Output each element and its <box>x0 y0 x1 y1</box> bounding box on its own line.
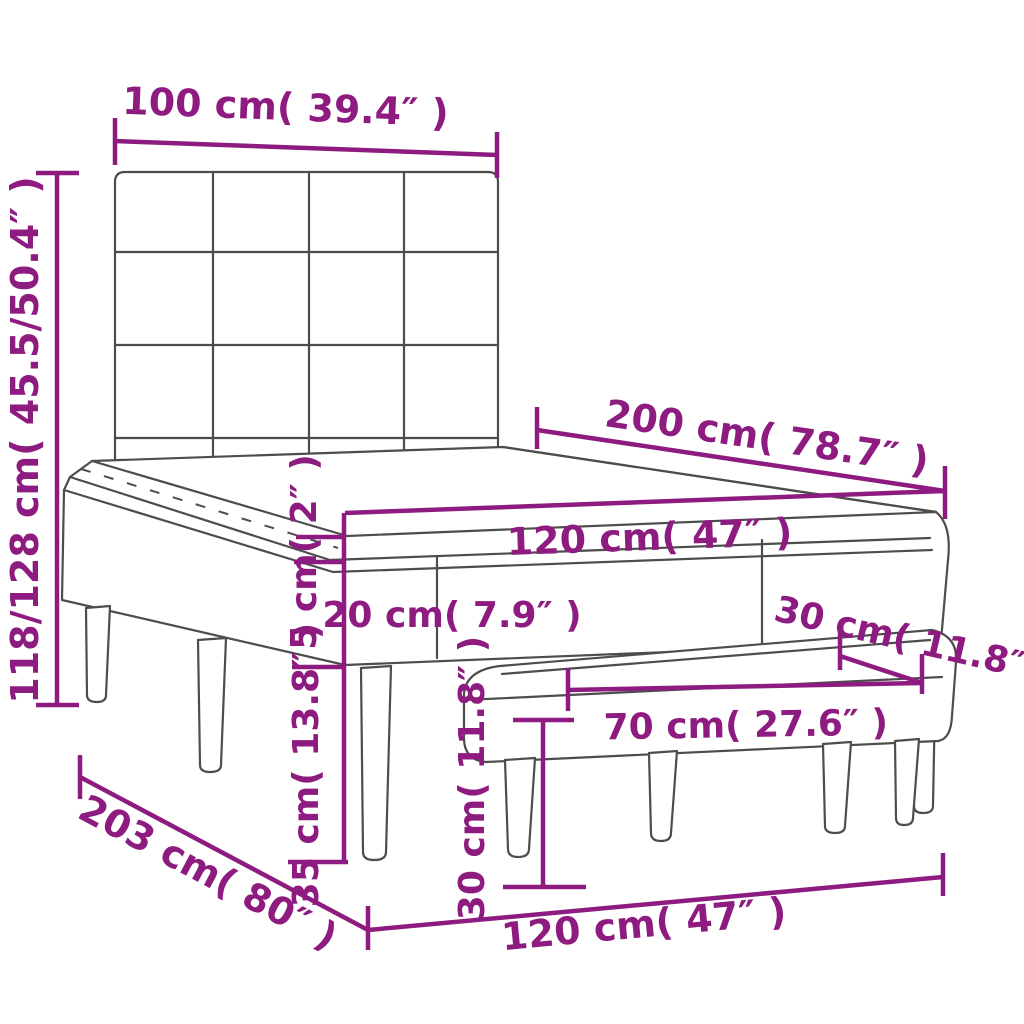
label-bench-seat-length: 70 cm( 27.6″ ) <box>603 703 888 749</box>
label-headboard-width: 100 cm( 39.4″ ) <box>121 79 449 136</box>
label-bench-height: 30 cm( 11.8″ ) <box>452 636 493 920</box>
product-dimension-diagram: 100 cm( 39.4″ ) 118/128 cm( 45.5/50.4″ )… <box>0 0 1024 1024</box>
dimension-line <box>115 141 497 155</box>
bench-leg <box>505 758 535 857</box>
bed-leg <box>86 606 110 702</box>
headboard-tuft-grid <box>115 172 498 462</box>
bench-leg <box>649 751 677 841</box>
label-mattress-thickness: 20 cm( 7.9″ ) <box>322 595 581 636</box>
label-bed-height: 118/128 cm( 45.5/50.4″ ) <box>3 176 47 703</box>
headboard-outline <box>115 172 498 462</box>
diagram-canvas: 100 cm( 39.4″ ) 118/128 cm( 45.5/50.4″ )… <box>0 0 1024 1024</box>
label-floor-width: 120 cm( 47″ ) <box>500 889 789 959</box>
label-topper-thickness: 5 cm( 2″ ) <box>284 454 325 650</box>
bench-leg <box>895 739 919 825</box>
label-bed-leg-height: 35 cm( 13.8″ ) <box>286 623 327 907</box>
bed-leg <box>198 638 226 772</box>
bed-leg <box>361 666 391 860</box>
bench-leg <box>823 742 851 833</box>
